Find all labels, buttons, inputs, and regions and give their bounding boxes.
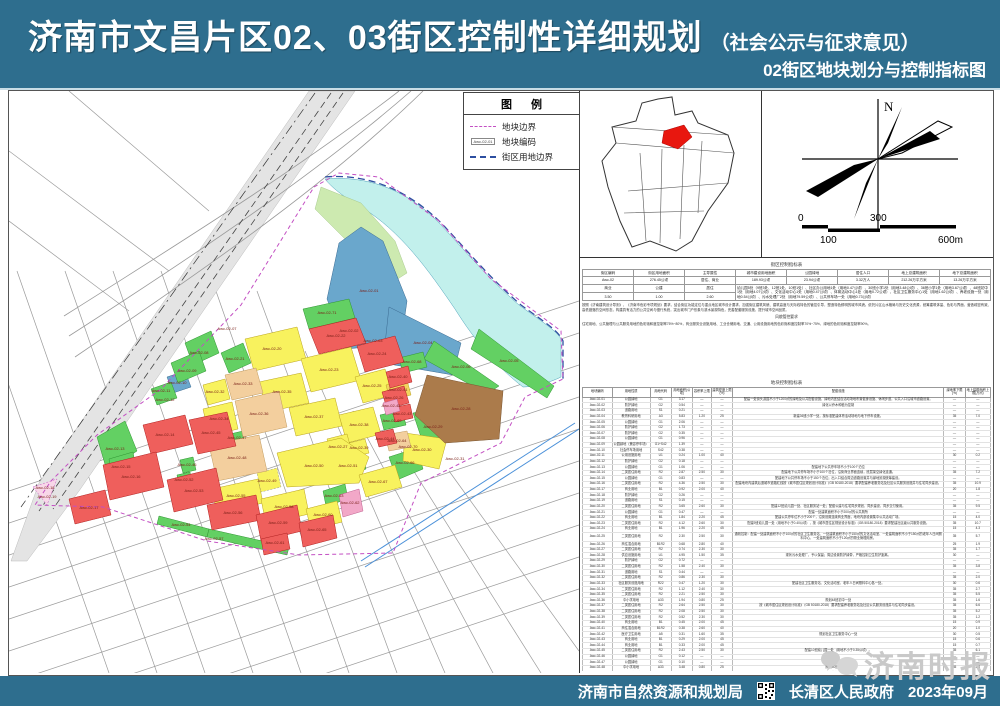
parcel-label: Awc-02-11 bbox=[152, 389, 171, 393]
legend-label: 地块边界 bbox=[502, 121, 536, 133]
parcel-label: Awc-02-07 bbox=[217, 327, 236, 331]
parcel-table-header: 地上建筑面积上限(万㎡) bbox=[965, 388, 990, 398]
legend-item-parcel-boundary: 地块边界 bbox=[470, 119, 573, 134]
header-line1: 济南市文昌片区02、03街区控制性详细规划（社会公示与征求意见） bbox=[28, 10, 920, 59]
parcel-label: Awc-02-12 bbox=[155, 398, 174, 402]
parcel-label: Awc-02-54 bbox=[171, 523, 190, 527]
block-value-row: Awc-02276.45公顷 居住、商业189.93公顷 23.94公顷3.32… bbox=[583, 277, 991, 284]
parcel-label: Awc-02-48 bbox=[227, 456, 246, 460]
parcel-table-header: 配套设施 bbox=[733, 388, 944, 398]
block-indicator-section: 街区控制指标表 街区编码街区用地面积 主导属性城市建设用地面积 公园绿地居住人口… bbox=[582, 261, 991, 326]
parcel-label: Awc-02-60 bbox=[313, 513, 332, 517]
parcel-label: Awc-02-55 bbox=[226, 494, 245, 498]
parcel-label: Awc-02-59 bbox=[268, 521, 287, 525]
parcel-table-body: Awc-02-01公园绿地G13.17——配建一处街头游园不小于1200㎡的绿地… bbox=[583, 397, 991, 671]
parcel-label: Awc-02-52 bbox=[174, 478, 193, 482]
parcel-label: Awc-02-70 bbox=[398, 445, 417, 449]
parcel-label: Awc-02-09 bbox=[177, 369, 196, 373]
parcel-boundary-swatch bbox=[470, 126, 496, 127]
parcel-label: Awc-02-06 bbox=[451, 365, 470, 369]
style-note: 住宅用地、公共管理与公共服务用地的色彩饱和度控制率75%~80%，商业服务业设施… bbox=[582, 322, 991, 327]
parcel-label: Awc-02-35 bbox=[272, 390, 291, 394]
parcel-label: Awc-02-27 bbox=[328, 445, 347, 449]
parcel-table-header: 绿地率下限(%) bbox=[944, 388, 965, 398]
table-row: Awc-02-25二类居住用地R22.302.5030通则控制：配建一处建筑面积… bbox=[583, 532, 991, 541]
parcel-label: Awc-02-50 bbox=[304, 464, 323, 468]
block-header-row: 街区编码街区用地面积 主导属性城市建设用地面积 公园绿地居住人口 地上总建筑面积… bbox=[583, 270, 991, 277]
header-band: 济南市文昌片区02、03街区控制性详细规划（社会公示与征求意见） 02街区地块划… bbox=[0, 0, 1000, 90]
parcel-label: Awc-02-58 bbox=[274, 505, 293, 509]
parcel-label: Awc-02-57 bbox=[204, 537, 223, 541]
planning-map: Awc-02-01Awc-02-02Awc-02-03Awc-02-04Awc-… bbox=[9, 91, 579, 673]
parcel-label: Awc-02-01 bbox=[359, 289, 378, 293]
jinan-times-logo-icon bbox=[820, 647, 860, 681]
qr-code bbox=[757, 682, 775, 700]
parcel-table-header-row: 地块编码用地性质用地代码用地面积(公顷)容积率上限建筑密度上限(%)配套设施绿地… bbox=[583, 388, 991, 398]
parcel-label: Awc-02-19 bbox=[37, 495, 56, 499]
block-subheader-row: 商业公建 居住 幼儿园5处（9班3处、12班1处、10班1处）、社区办公用地1处… bbox=[583, 284, 991, 292]
scale-600: 600m bbox=[938, 235, 963, 246]
parcel-table-header: 地块编码 bbox=[583, 388, 613, 398]
parcel-label: Awc-02-05 bbox=[499, 359, 518, 363]
style-title: 风貌管控要求 bbox=[582, 315, 991, 320]
sheet-title: 02街区地块划分与控制指标图 bbox=[763, 56, 986, 81]
block-table-title: 街区控制指标表 bbox=[582, 262, 991, 268]
watermark: 济南时报 bbox=[820, 642, 992, 686]
location-map-svg bbox=[580, 91, 761, 257]
info-panel: N 0 300 100 600m bbox=[580, 91, 993, 673]
legend-items: 地块边界 Awc-02-01 地块编码 街区用地边界 bbox=[464, 115, 579, 168]
north-label: N bbox=[884, 99, 894, 114]
compass-box: N 0 300 100 600m bbox=[762, 91, 993, 258]
parcel-label: Awc-02-41 bbox=[388, 388, 407, 392]
parcel-label: Awc-02-47 bbox=[227, 436, 246, 440]
parcel-label: Awc-02-49 bbox=[257, 479, 276, 483]
block-note: 按照《济南建筑设计导则》、《济南市色彩专项规划》要求，结合街区功能定位与重点地区… bbox=[582, 303, 991, 312]
page-title: 济南市文昌片区02、03街区控制性详细规划 bbox=[28, 19, 703, 57]
legend-box: 图 例 地块边界 Awc-02-01 地块编码 街区用地边界 bbox=[463, 92, 580, 170]
parcel-label: Awc-02-15 bbox=[111, 465, 130, 469]
parcel-label: Awc-02-68 bbox=[402, 360, 421, 364]
footer-agency-1: 济南市自然资源和规划局 bbox=[578, 681, 743, 702]
parcel-table-header: 建筑密度上限(%) bbox=[711, 388, 732, 398]
parcel-code-swatch: Awc-02-01 bbox=[470, 138, 496, 145]
parcel-label: Awc-02-26 bbox=[384, 396, 403, 400]
parcel-label: Awc-02-25 bbox=[362, 384, 381, 388]
parcel-label: Awc-02-40 bbox=[388, 375, 407, 379]
block-boundary-swatch bbox=[470, 156, 496, 158]
parcel-label: Awc-02-66 bbox=[395, 461, 414, 465]
scale-300: 300 bbox=[870, 213, 887, 224]
parcel-table-title: 地块控制指标表 bbox=[582, 380, 991, 386]
page-subtitle: （社会公示与征求意见） bbox=[711, 33, 920, 54]
parcel-label: Awc-02-64 bbox=[387, 439, 406, 443]
parcel-label: Awc-02-38 bbox=[349, 423, 368, 427]
parcel-table-header: 用地代码 bbox=[650, 388, 671, 398]
parcel-indicator-section: 地块控制指标表 地块编码用地性质用地代码用地面积(公顷)容积率上限建筑密度上限(… bbox=[582, 379, 991, 671]
scale-100: 100 bbox=[820, 235, 837, 246]
parcel-label: Awc-02-22 bbox=[326, 334, 345, 338]
location-map bbox=[580, 91, 762, 258]
facilities-cell: 幼儿园5处（9班3处、12班1处、10班1处）、社区办公用地1处（用地0.47公… bbox=[736, 284, 991, 300]
parcel-table-header: 用地面积(公顷) bbox=[671, 388, 692, 398]
parcel-label: Awc-02-29 bbox=[423, 425, 442, 429]
parcel-label: Awc-02-36 bbox=[249, 412, 268, 416]
legend-label: 街区用地边界 bbox=[502, 151, 553, 163]
parcel-label: Awc-02-46 bbox=[177, 463, 196, 467]
parcel-label: Awc-02-18 bbox=[35, 486, 54, 490]
parcel-label: Awc-02-32 bbox=[205, 390, 224, 394]
top-boxes: N 0 300 100 600m bbox=[580, 91, 993, 259]
parcel-table-header: 用地性质 bbox=[612, 388, 650, 398]
parcel-indicator-table: 地块编码用地性质用地代码用地面积(公顷)容积率上限建筑密度上限(%)配套设施绿地… bbox=[582, 387, 991, 671]
parcel-label: Awc-02-28 bbox=[451, 407, 470, 411]
parcel-label: Awc-02-65 bbox=[307, 528, 326, 532]
planning-poster-page: 济南市文昌片区02、03街区控制性详细规划（社会公示与征求意见） 02街区地块划… bbox=[0, 0, 1000, 706]
parcel-label: Awc-02-56 bbox=[223, 511, 242, 515]
parcel-label: Awc-02-20 bbox=[262, 347, 281, 351]
scale-0: 0 bbox=[798, 213, 804, 224]
parcel-label: Awc-02-34 bbox=[209, 417, 228, 421]
map-label-layer: Awc-02-01Awc-02-02Awc-02-03Awc-02-04Awc-… bbox=[9, 91, 579, 673]
parcel-label: Awc-02-51 bbox=[338, 464, 357, 468]
parcel-label: Awc-02-63 bbox=[324, 494, 343, 498]
parcel-label: Awc-02-45 bbox=[201, 431, 220, 435]
parcel-label: Awc-02-13 bbox=[105, 447, 124, 451]
parcel-label: Awc-02-33 bbox=[233, 382, 252, 386]
parcel-label: Awc-02-31 bbox=[445, 457, 464, 461]
parcel-label: Awc-02-71 bbox=[317, 311, 336, 315]
compass-rose: N bbox=[802, 99, 958, 229]
parcel-label: Awc-02-53 bbox=[184, 489, 203, 493]
parcel-label: Awc-02-42 bbox=[381, 404, 400, 408]
scale-bar: 0 300 100 600m bbox=[798, 213, 963, 246]
parcel-label: Awc-02-37 bbox=[304, 415, 323, 419]
parcel-label: Awc-02-23 bbox=[319, 368, 338, 372]
legend-title: 图 例 bbox=[464, 93, 579, 115]
parcel-label: Awc-02-39 bbox=[349, 446, 368, 450]
parcel-label: Awc-02-14 bbox=[155, 433, 174, 437]
parcel-label: Awc-02-03 bbox=[363, 339, 382, 343]
parcel-label: Awc-02-24 bbox=[367, 352, 386, 356]
parcel-label: Awc-02-62 bbox=[340, 501, 359, 505]
watermark-text: 济南时报 bbox=[864, 642, 992, 686]
parcel-label: Awc-02-16 bbox=[121, 475, 140, 479]
legend-item-parcel-code: Awc-02-01 地块编码 bbox=[470, 134, 573, 149]
content-panel: Awc-02-01Awc-02-02Awc-02-03Awc-02-04Awc-… bbox=[8, 90, 994, 676]
compass-scale-svg: N 0 300 100 600m bbox=[762, 91, 993, 257]
parcel-label: Awc-02-61 bbox=[265, 541, 284, 545]
block-indicator-table: 街区编码街区用地面积 主导属性城市建设用地面积 公园绿地居住人口 地上总建筑面积… bbox=[582, 269, 991, 301]
parcel-table-header: 容积率上限 bbox=[692, 388, 711, 398]
parcel-label: Awc-02-67 bbox=[368, 480, 387, 484]
parcel-label: Awc-02-08 bbox=[189, 351, 208, 355]
legend-label: 地块编码 bbox=[502, 136, 536, 148]
parcel-label: Awc-02-43 bbox=[392, 412, 411, 416]
parcel-label: Awc-02-69 bbox=[382, 419, 401, 423]
parcel-label: Awc-02-10 bbox=[167, 381, 186, 385]
parcel-label: Awc-02-17 bbox=[79, 506, 98, 510]
legend-item-block-boundary: 街区用地边界 bbox=[470, 149, 573, 164]
parcel-label: Awc-02-04 bbox=[413, 341, 432, 345]
parcel-label: Awc-02-21 bbox=[225, 357, 244, 361]
